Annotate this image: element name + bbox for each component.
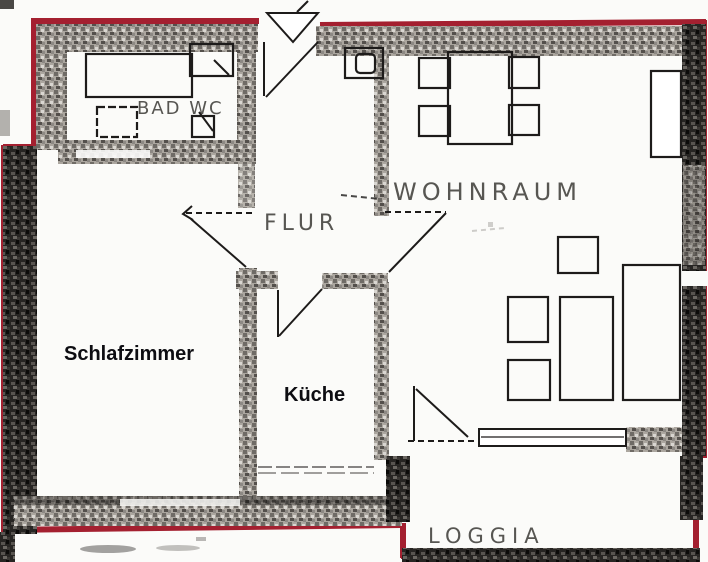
scan-speck-livingroom: [488, 222, 493, 227]
wall-right-light-patch: [683, 165, 705, 265]
label-flur: FLUR: [264, 211, 339, 236]
wall-livingroom-left-upper: [374, 48, 389, 216]
wall-loggia-bottom: [402, 548, 700, 562]
wall-hall-bedroom-jamb: [238, 164, 255, 208]
label-schlafzimmer: Schlafzimmer: [64, 343, 194, 365]
wall-left-corner-smudge: [0, 532, 15, 562]
label-loggia: LOGGIA: [428, 524, 545, 548]
floorplan-page: BAD WC WOHNRAUM FLUR LOGGIA Schlafzimmer…: [0, 0, 708, 562]
livingroom-sideboard: [651, 71, 681, 157]
wall-bathroom-right: [237, 30, 256, 164]
label-kueche: Küche: [284, 384, 345, 406]
floorplan-svg: BAD WC WOHNRAUM FLUR LOGGIA Schlafzimmer…: [0, 0, 708, 562]
label-wohnraum: WOHNRAUM: [393, 178, 582, 206]
scan-smudge-bottom-1: [80, 545, 136, 553]
scan-gap-right-wall: [682, 271, 708, 286]
scan-streak-bottom-wall: [120, 499, 240, 506]
wall-loggia-left: [386, 456, 410, 522]
wall-left-upper: [36, 24, 67, 150]
label-bad-wc: BAD WC: [137, 98, 224, 119]
wall-left-lower: [3, 146, 37, 534]
wall-bedroom-right: [239, 268, 257, 522]
wall-kitchen-top-left: [236, 271, 278, 289]
scan-speck-top-left: [0, 0, 14, 9]
scan-smudge-bottom-2: [156, 545, 200, 551]
scan-smudge-bottom-3: [196, 537, 206, 541]
wall-kitchen-right: [374, 282, 389, 460]
scan-streak-bathroom-wall: [76, 150, 150, 158]
wall-loggia-right: [680, 456, 703, 520]
scan-speck-left: [0, 110, 10, 136]
wall-top-bathroom: [36, 24, 258, 52]
red-top-right: [320, 22, 706, 25]
